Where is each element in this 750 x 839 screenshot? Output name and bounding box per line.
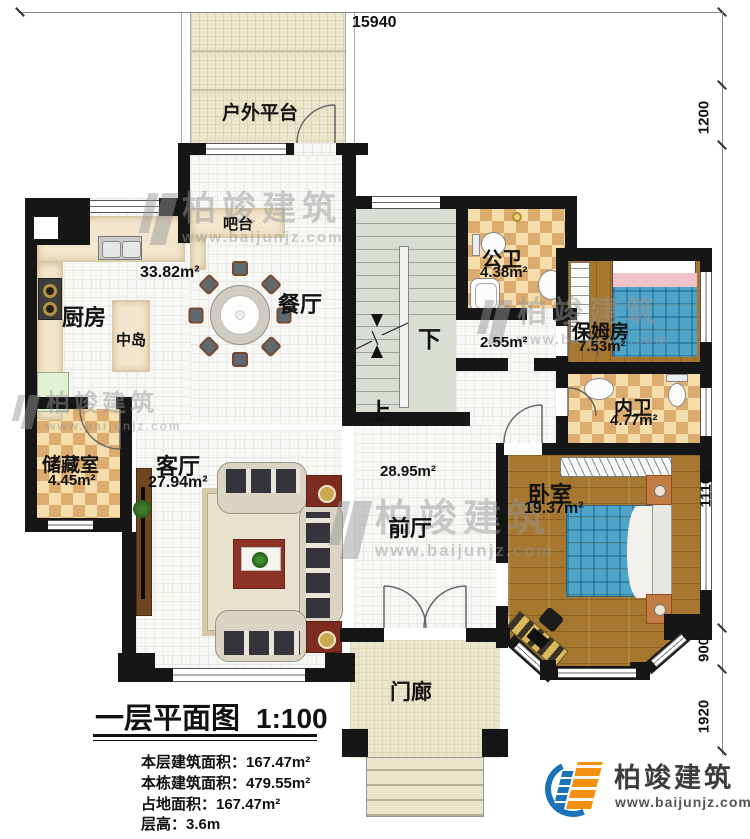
- dimension-top-value: 15940: [352, 14, 397, 32]
- label-stair-down: 下: [418, 320, 441, 354]
- label-dining: 餐厅: [278, 287, 322, 319]
- title-underline: [93, 734, 317, 737]
- info-line-footprint: 占地面积：167.47m²: [141, 793, 280, 814]
- label-foyer: 前厅: [388, 511, 432, 543]
- label-storage-area: 4.45m²: [48, 472, 96, 489]
- stair-arrow-down: [371, 314, 383, 327]
- dimension-right-value: 1920: [696, 682, 713, 752]
- label-island: 中岛: [106, 329, 156, 350]
- label-corridor-area: 2.55m²: [480, 334, 528, 351]
- label-stair-up: 上: [368, 392, 391, 426]
- label-bar: 吧台: [196, 213, 280, 234]
- brand-logo-icon: [545, 753, 609, 829]
- label-platform: 户外平台: [210, 98, 310, 125]
- plan-scale: 1:100: [256, 703, 328, 735]
- titleblock-title-row: 一层平面图 1:100: [95, 695, 328, 737]
- brand-name: 柏竣建筑: [614, 756, 734, 795]
- dimension-line-top: [20, 12, 722, 13]
- label-dining-area: 33.82m²: [140, 264, 200, 282]
- info-line-floor-area: 本层建筑面积：167.47m²: [141, 751, 310, 772]
- dimension-line-right: [722, 12, 723, 755]
- label-living-area: 27.94m²: [148, 474, 208, 492]
- label-nanny-area: 7.53m²: [578, 338, 626, 355]
- label-kitchen: 厨房: [62, 300, 106, 332]
- brand-logo: 柏竣建筑 www.baijunjz.com: [540, 748, 748, 834]
- floorplan-page: { "dimensions": { "top": "15940", "right…: [0, 0, 750, 839]
- label-public-bath-area: 4.38m²: [480, 264, 528, 281]
- info-line-height: 层高：3.6m: [141, 813, 220, 834]
- title-underline-thin: [93, 740, 317, 741]
- label-foyer-area: 28.95m²: [380, 463, 436, 480]
- label-porch: 门廊: [390, 676, 432, 706]
- dimension-right-value: 900: [696, 615, 713, 685]
- dimension-right-value: 11100: [698, 453, 715, 523]
- plan-title: 一层平面图: [95, 695, 240, 737]
- label-bedroom-area: 19.37m²: [524, 500, 584, 518]
- brand-url: www.baijunjz.com: [615, 794, 750, 810]
- label-inner-bath-area: 4.77m²: [610, 412, 658, 429]
- info-line-building-area: 本栋建筑面积：479.55m²: [141, 772, 310, 793]
- stair-arrow-up: [371, 345, 383, 358]
- dimension-right-value: 1200: [696, 83, 713, 153]
